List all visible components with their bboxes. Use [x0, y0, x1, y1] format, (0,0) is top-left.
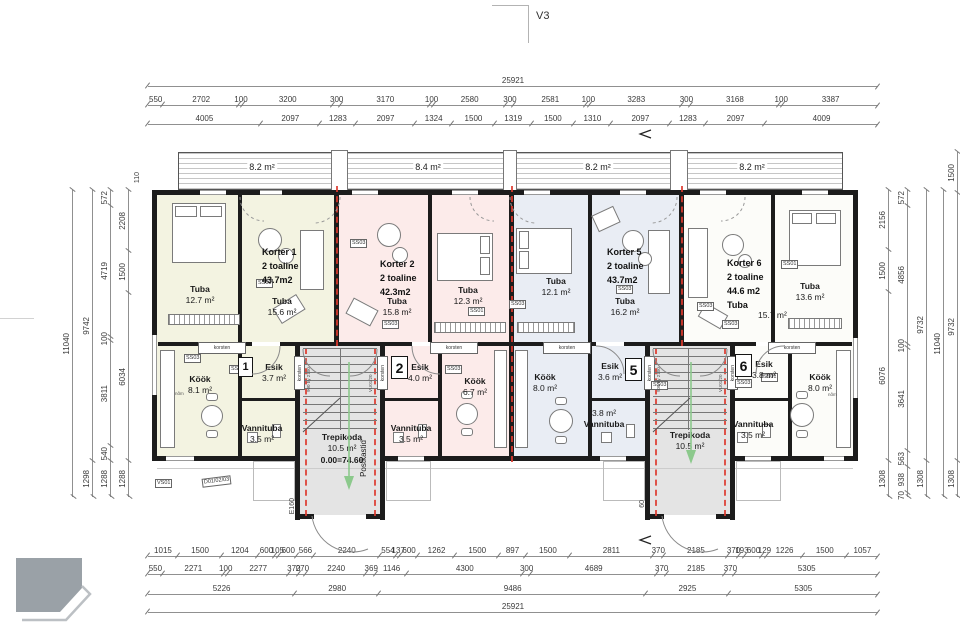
dim-bottom-rowA: 1015150012046001056005662240554137600126… [148, 546, 878, 557]
toilet [626, 424, 635, 438]
dim-seg: 3641 [897, 348, 908, 451]
dim-seg: 1308 [947, 461, 958, 497]
wall-interior [588, 346, 592, 456]
dining-table [201, 405, 223, 427]
section-arrow-icon [640, 130, 651, 138]
window [152, 335, 157, 395]
dim-seg: 1298 [82, 461, 93, 497]
window [452, 190, 478, 195]
door-code-tag: VU01/20 [368, 352, 373, 392]
window [524, 190, 550, 195]
porch-outline [603, 461, 645, 501]
dim-seg: 2240 [314, 547, 380, 557]
component-tag: SS03 [445, 365, 462, 374]
dim-seg: 2702 [163, 96, 239, 106]
balcony-door [331, 150, 348, 191]
dim-seg: 9486 [379, 585, 646, 595]
dim-seg: 1500 [526, 547, 570, 557]
component-tag: SS03 [697, 302, 714, 311]
apartment1-info: Korter 12 toaline43.7m2 [262, 246, 299, 288]
kitchen-counter [515, 350, 528, 448]
dim-top-total: 25921 [148, 76, 878, 87]
room-label: Esik4.0 m² [408, 362, 432, 385]
room-label: Tuba12.7 m² [186, 284, 215, 307]
porch-outline [386, 461, 431, 501]
dim-seg: 6034 [118, 293, 129, 461]
component-tag: SS03 [735, 379, 752, 388]
chimney-tag: korsten [430, 342, 478, 354]
window [352, 190, 378, 195]
floor-plan-sheet: V3 25921 5502702100320030031701002580300… [0, 0, 960, 640]
armchair [377, 223, 401, 247]
chimney-tag: korsten [198, 342, 246, 354]
room-label: Vannituba3.5 m² [242, 423, 283, 446]
dim-seg: 4689 [531, 565, 657, 575]
porch-outline [253, 461, 295, 501]
room-label: Tuba12.3 m² [454, 285, 483, 308]
component-tag: SS03 [722, 320, 739, 329]
wall-interior [438, 346, 442, 456]
dim-seg: 938 [897, 467, 908, 494]
dim-bottom-rowC: 52262980948629255305 [148, 584, 878, 595]
entry-tag: 60 [639, 500, 646, 508]
stairwell-label: Trepikoda10.5 m² [670, 430, 710, 453]
room-label: Tuba15.8 m² [383, 296, 412, 319]
apartment1-badge: 1 [238, 357, 253, 377]
dim-right-col5: 150097321308 [947, 152, 958, 497]
apartment2-info: Korter 22 toaline42.3m2 [380, 258, 417, 300]
room-label: Köök8.0 m² [808, 372, 832, 395]
dim-seg: 4719 [100, 206, 111, 337]
dim-seg: 2156 [878, 190, 889, 250]
dim-seg: 2980 [295, 585, 379, 595]
component-tag: SS03 [350, 239, 367, 248]
armchair [722, 234, 744, 256]
balcony-door [670, 150, 688, 191]
wall-bathroom [240, 398, 297, 401]
apartment6-info: Korter 62 toaline44.6 m2Tuba [727, 257, 764, 313]
view-marker-line-h [492, 5, 528, 6]
chair [555, 397, 567, 405]
dim-seg: 5226 [148, 585, 295, 595]
dim-seg: 1204 [222, 547, 257, 557]
dim-seg: 2240 [306, 565, 366, 575]
dim-left-col1: 11040 [62, 190, 73, 497]
bed-pillow [519, 231, 529, 249]
balcony-door [503, 150, 517, 191]
sideboard [300, 230, 324, 290]
dim-seg: 2097 [611, 115, 670, 125]
washer [601, 432, 612, 443]
wall-exterior-left [152, 190, 157, 461]
component-tag: SS03 [509, 300, 526, 309]
wall-exterior-right [853, 190, 858, 461]
dim-seg: 1500 [803, 547, 847, 557]
door-size-tag: 900 by 2100 [306, 352, 311, 392]
room-label: Vannituba3.5 m² [391, 423, 432, 446]
apartment5-badge: 5 [625, 358, 642, 381]
dim-seg: 1324 [415, 115, 452, 125]
dim-seg: 11040 [62, 190, 73, 497]
dim-seg: 2185 [667, 565, 726, 575]
bed-pillow [816, 213, 836, 224]
dim-seg: 3200 [243, 96, 333, 106]
dresser [517, 322, 575, 333]
misc-tag: nõm [175, 391, 184, 396]
room-label: Tuba13.6 m² [796, 281, 825, 304]
dim-top-row2: 5502702100320030031701002580300258110032… [148, 95, 878, 106]
wall-interior [771, 195, 775, 345]
kitchen-counter [494, 350, 507, 448]
apartment6-badge: 6 [735, 354, 752, 377]
window [802, 190, 828, 195]
dim-bottom-total: 25921 [148, 602, 878, 613]
dim-seg: 2277 [228, 565, 289, 575]
dim-seg: 2097 [706, 115, 765, 125]
room-label: Köök8.1 m² [188, 374, 212, 397]
stairwell-label: Trepikoda10.5 m²0.00=74.60 [321, 432, 364, 466]
apartment2-badge: 2 [391, 356, 408, 379]
room-label: Tuba12.1 m² [542, 276, 571, 299]
room-label: Vannituba3.5 m² [733, 419, 774, 442]
dim-seg: 1015 [148, 547, 178, 557]
fire-separation-line [336, 186, 338, 346]
dim-seg: 1500 [452, 115, 494, 125]
window [260, 190, 282, 195]
wall-bathroom [731, 398, 789, 401]
chair [796, 391, 808, 399]
dim-seg: 1262 [418, 547, 455, 557]
dim-seg: 2097 [261, 115, 320, 125]
porch-outline [736, 461, 781, 501]
dim-right-col4: 11040 [933, 190, 944, 497]
dim-bottom-rowB: 5502271100227737027022403691146430030046… [148, 564, 878, 575]
dim-seg: 1308 [916, 461, 927, 497]
door-opening [596, 342, 624, 346]
dim-seg: 3170 [341, 96, 430, 106]
dim-seg: 897 [499, 547, 525, 557]
apartment5-info: Korter 52 toaline43.7m2 [607, 246, 644, 288]
dim-seg: 9742 [82, 190, 93, 461]
stair-stringer [688, 348, 689, 430]
dining-table [549, 409, 573, 433]
dim-right-col1: 2156150060761308 [878, 190, 889, 497]
balcony-area-label: 8.2 m² [247, 162, 277, 172]
stair-stringer [340, 348, 341, 430]
chimney-tag: korsten [294, 356, 305, 390]
dining-table [790, 403, 814, 427]
dim-seg: 1283 [320, 115, 356, 125]
dim-seg: 4009 [765, 115, 878, 125]
chair [555, 436, 567, 444]
room-label: Tuba16.2 m² [611, 296, 640, 319]
dim-seg: 1500 [878, 250, 889, 292]
dim-seg: 6076 [878, 292, 889, 461]
dim-left-col2: 97421298 [82, 190, 93, 497]
dim-seg: 1500 [947, 152, 958, 193]
bed-pillow [175, 206, 197, 217]
dim-seg: 3387 [783, 96, 878, 106]
dim-seg: 2580 [434, 96, 506, 106]
dim-seg: 2581 [514, 96, 586, 106]
component-tag: SS03 [382, 320, 399, 329]
window [600, 456, 626, 461]
chimney-tag: korsten [543, 342, 591, 354]
door-group-tag: D01/02/03 [202, 475, 232, 488]
mailboxes-label: Postkastid [359, 440, 368, 477]
dim-seg: 4856 [897, 206, 908, 343]
chair [461, 428, 473, 436]
door-size-tag: 900 by 2100 [656, 352, 661, 392]
dim-seg: 25921 [148, 77, 878, 87]
wardrobe [688, 228, 708, 298]
chimney-tag: korsten [377, 356, 388, 390]
chair [796, 430, 808, 438]
dim-seg: 1283 [670, 115, 706, 125]
bed-pillow [200, 206, 222, 217]
dim-seg: 9732 [947, 193, 958, 461]
door-opening [252, 342, 280, 346]
window [745, 456, 771, 461]
dim-seg: 2925 [646, 585, 728, 595]
view-label: V3 [536, 10, 549, 22]
dim-110: 110 [134, 172, 141, 183]
dresser [168, 314, 240, 325]
dim-seg: 1500 [455, 547, 499, 557]
dim-seg: 3283 [590, 96, 682, 106]
component-tag: SS01 [468, 307, 485, 316]
dim-seg: 1226 [767, 547, 803, 557]
dim-seg: 2208 [118, 190, 129, 251]
dim-left-col3: 572471910038115401288 [100, 190, 111, 497]
dim-seg: 1500 [532, 115, 574, 125]
dim-seg: 1310 [574, 115, 611, 125]
dim-seg: 4300 [407, 565, 523, 575]
dim-seg: 1146 [376, 565, 407, 575]
dim-seg: 4005 [148, 115, 261, 125]
dim-seg: 1288 [100, 461, 111, 497]
dim-seg: 5305 [735, 565, 878, 575]
dim-seg: 3168 [691, 96, 780, 106]
window [166, 456, 194, 461]
wall-interior [428, 195, 432, 345]
dim-seg: 11040 [933, 190, 944, 497]
fire-separation-line [681, 186, 683, 346]
room-label: Esik3.6 m² [598, 361, 622, 384]
edge-tick [0, 318, 34, 319]
room-area-label: 15.7 m² [758, 310, 787, 320]
component-tag: VS01 [155, 479, 172, 488]
balcony-area-label: 8.4 m² [413, 162, 443, 172]
door-code-tag: VU01/20 [718, 352, 723, 392]
component-tag: SS01 [781, 260, 798, 269]
room-label: Esik3.7 m² [262, 362, 286, 385]
dresser [788, 318, 842, 329]
dim-right-col3: 97321308 [916, 190, 927, 497]
dim-top-row3: 4005209712832097132415001319150013102097… [148, 114, 878, 125]
dim-seg: 2271 [163, 565, 224, 575]
dim-seg: 2185 [664, 547, 728, 557]
entry-tag: E160 [289, 498, 296, 514]
balcony-area-label: 8.2 m² [737, 162, 767, 172]
dim-seg: 5305 [729, 585, 878, 595]
window [200, 190, 226, 195]
view-marker-line-v [528, 5, 529, 43]
kitchen-counter [836, 350, 851, 448]
wall-bathroom [592, 398, 650, 401]
chimney-tag: korsten [768, 342, 816, 354]
section-arrow-icon [640, 536, 651, 544]
bed-pillow [792, 213, 812, 224]
component-tag: SS03 [184, 354, 201, 363]
wall-exterior-top [152, 190, 858, 195]
dim-seg: 1308 [878, 461, 889, 497]
room-label: 3.8 m²Vannituba [584, 408, 625, 431]
dim-left-col4: 2208150060341288 [118, 190, 129, 497]
room-label: Esik3.8 m² [752, 359, 776, 382]
room-label: Köök8.0 m² [533, 372, 557, 395]
window [398, 456, 424, 461]
dim-seg: 1500 [118, 251, 129, 293]
dim-seg: 25921 [148, 603, 878, 613]
wall-bathroom [385, 398, 440, 401]
room-label: Tuba15.6 m² [268, 296, 297, 319]
window [700, 190, 726, 195]
dim-seg: 1500 [178, 547, 222, 557]
window [620, 190, 646, 195]
dim-seg: 2811 [570, 547, 653, 557]
bed-pillow [480, 257, 490, 275]
dim-seg: 2097 [356, 115, 415, 125]
window [824, 456, 844, 461]
room-label: Köök6.7 m² [463, 376, 487, 399]
window [853, 338, 858, 398]
dim-seg: 9732 [916, 190, 927, 461]
dim-seg: 3811 [100, 341, 111, 447]
dim-seg: 1057 [847, 547, 878, 557]
bed-pillow [480, 236, 490, 254]
chair [206, 430, 218, 438]
dim-seg: 1288 [118, 461, 129, 497]
balcony-area-label: 8.2 m² [583, 162, 613, 172]
fire-separation-line [511, 186, 513, 462]
dining-table [456, 403, 478, 425]
wall-interior [788, 346, 792, 456]
dim-seg: 1319 [495, 115, 532, 125]
dim-right-col2: 5724856100364156393870 [897, 190, 908, 497]
dim-seg: 70 [897, 493, 908, 497]
sheet-number-badge[interactable]: 24 [28, 572, 51, 596]
dresser [434, 322, 506, 333]
bed-pillow [519, 251, 529, 269]
kitchen-counter [160, 350, 175, 448]
